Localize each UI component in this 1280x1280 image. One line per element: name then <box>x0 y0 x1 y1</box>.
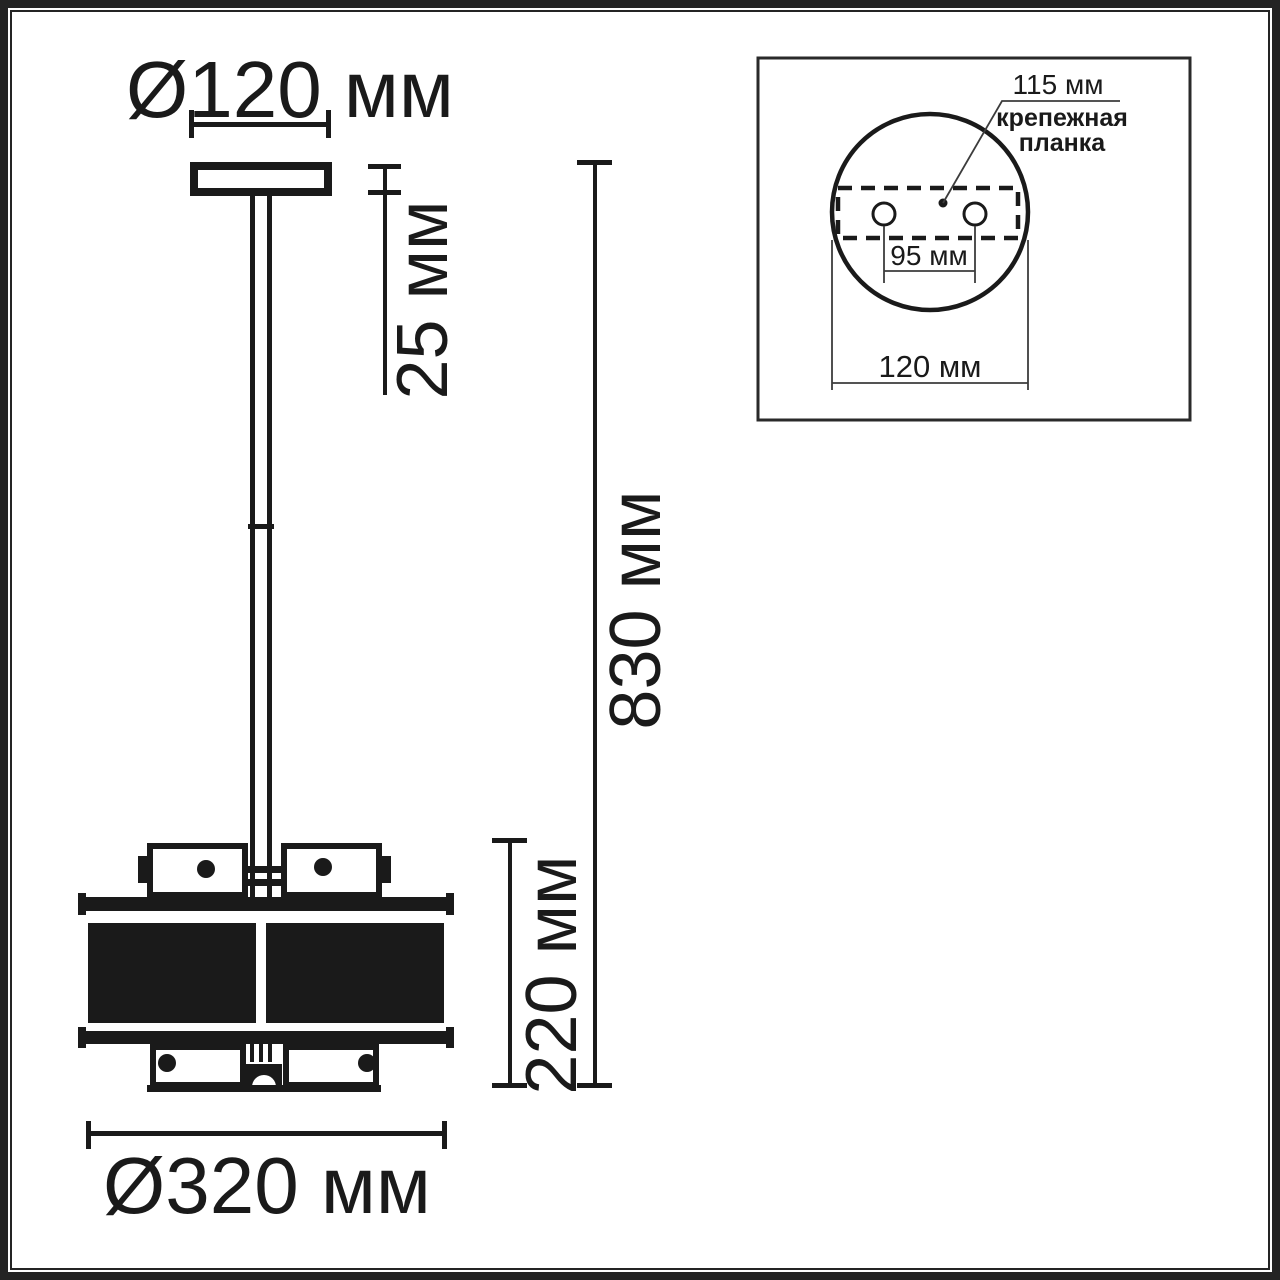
upper-plate-right-tab <box>381 856 391 883</box>
dimension-total-height: 830 мм <box>604 475 668 745</box>
screw-lower-right <box>358 1054 376 1072</box>
dimension-canopy-diameter: Ø120 мм <box>126 50 454 130</box>
lamp-dimension-diagram: Ø120 мм 25 мм 830 мм 220 мм <box>0 0 1280 1280</box>
rod-coupler-stripe <box>246 879 282 886</box>
dimension-line-shade-diameter <box>88 1131 445 1136</box>
upper-plate-left-tab <box>138 856 148 883</box>
dimension-canopy-height: 25 мм <box>394 200 452 400</box>
shade-top-rim-cap-left <box>78 893 86 915</box>
finial-stripe <box>268 1044 272 1062</box>
mounting-plate-inset: 115 мм крепежная планка 95 мм 120 мм <box>756 56 1194 424</box>
dimension-tick <box>189 110 194 138</box>
dimension-tick <box>442 1121 447 1149</box>
screw-upper-left <box>197 860 215 878</box>
shade-top-rim <box>84 897 448 911</box>
dimension-hole-spacing: 95 мм <box>890 240 967 271</box>
finial-stripe <box>259 1044 263 1062</box>
rod-joint <box>248 524 274 529</box>
hanging-rod-left-line <box>250 196 255 897</box>
mounting-hole-right <box>964 203 986 225</box>
shade-bottom-rim-cap-right <box>446 1027 454 1048</box>
dimension-shade-diameter: Ø320 мм <box>103 1146 431 1226</box>
canopy-top-view-circle <box>832 114 1028 310</box>
shade-bottom-rim <box>84 1031 448 1044</box>
shade-bottom-rim-cap-left <box>78 1027 86 1048</box>
hanging-rod-right-line <box>267 196 272 897</box>
dimension-shade-height: 220 мм <box>521 850 583 1100</box>
bracket-label-line2: планка <box>1019 129 1106 157</box>
shade-center-divider <box>256 923 266 1023</box>
pendant-lamp-elevation: Ø120 мм 25 мм 830 мм 220 мм <box>0 0 700 1240</box>
mounting-bracket-dashed-outline <box>838 188 1018 238</box>
screw-lower-left <box>158 1054 176 1072</box>
dimension-canopy-top-diameter: 120 мм <box>879 349 982 384</box>
shade-top-rim-cap-right <box>446 893 454 915</box>
dimension-line-canopy-diameter <box>191 122 330 127</box>
dimension-tick <box>86 1121 91 1149</box>
lamp-shade-body <box>88 923 444 1023</box>
bracket-label-line1: крепежная <box>996 104 1128 132</box>
lamp-bottom-edge <box>147 1085 381 1092</box>
mounting-hole-left <box>873 203 895 225</box>
ceiling-canopy <box>190 162 332 196</box>
dimension-tick <box>326 110 331 138</box>
upper-plate-right <box>281 843 382 898</box>
rod-coupler-stripe <box>246 866 282 873</box>
dimension-plate-length: 115 мм <box>1013 69 1104 100</box>
screw-upper-right <box>314 858 332 876</box>
finial-stripe <box>250 1044 254 1062</box>
